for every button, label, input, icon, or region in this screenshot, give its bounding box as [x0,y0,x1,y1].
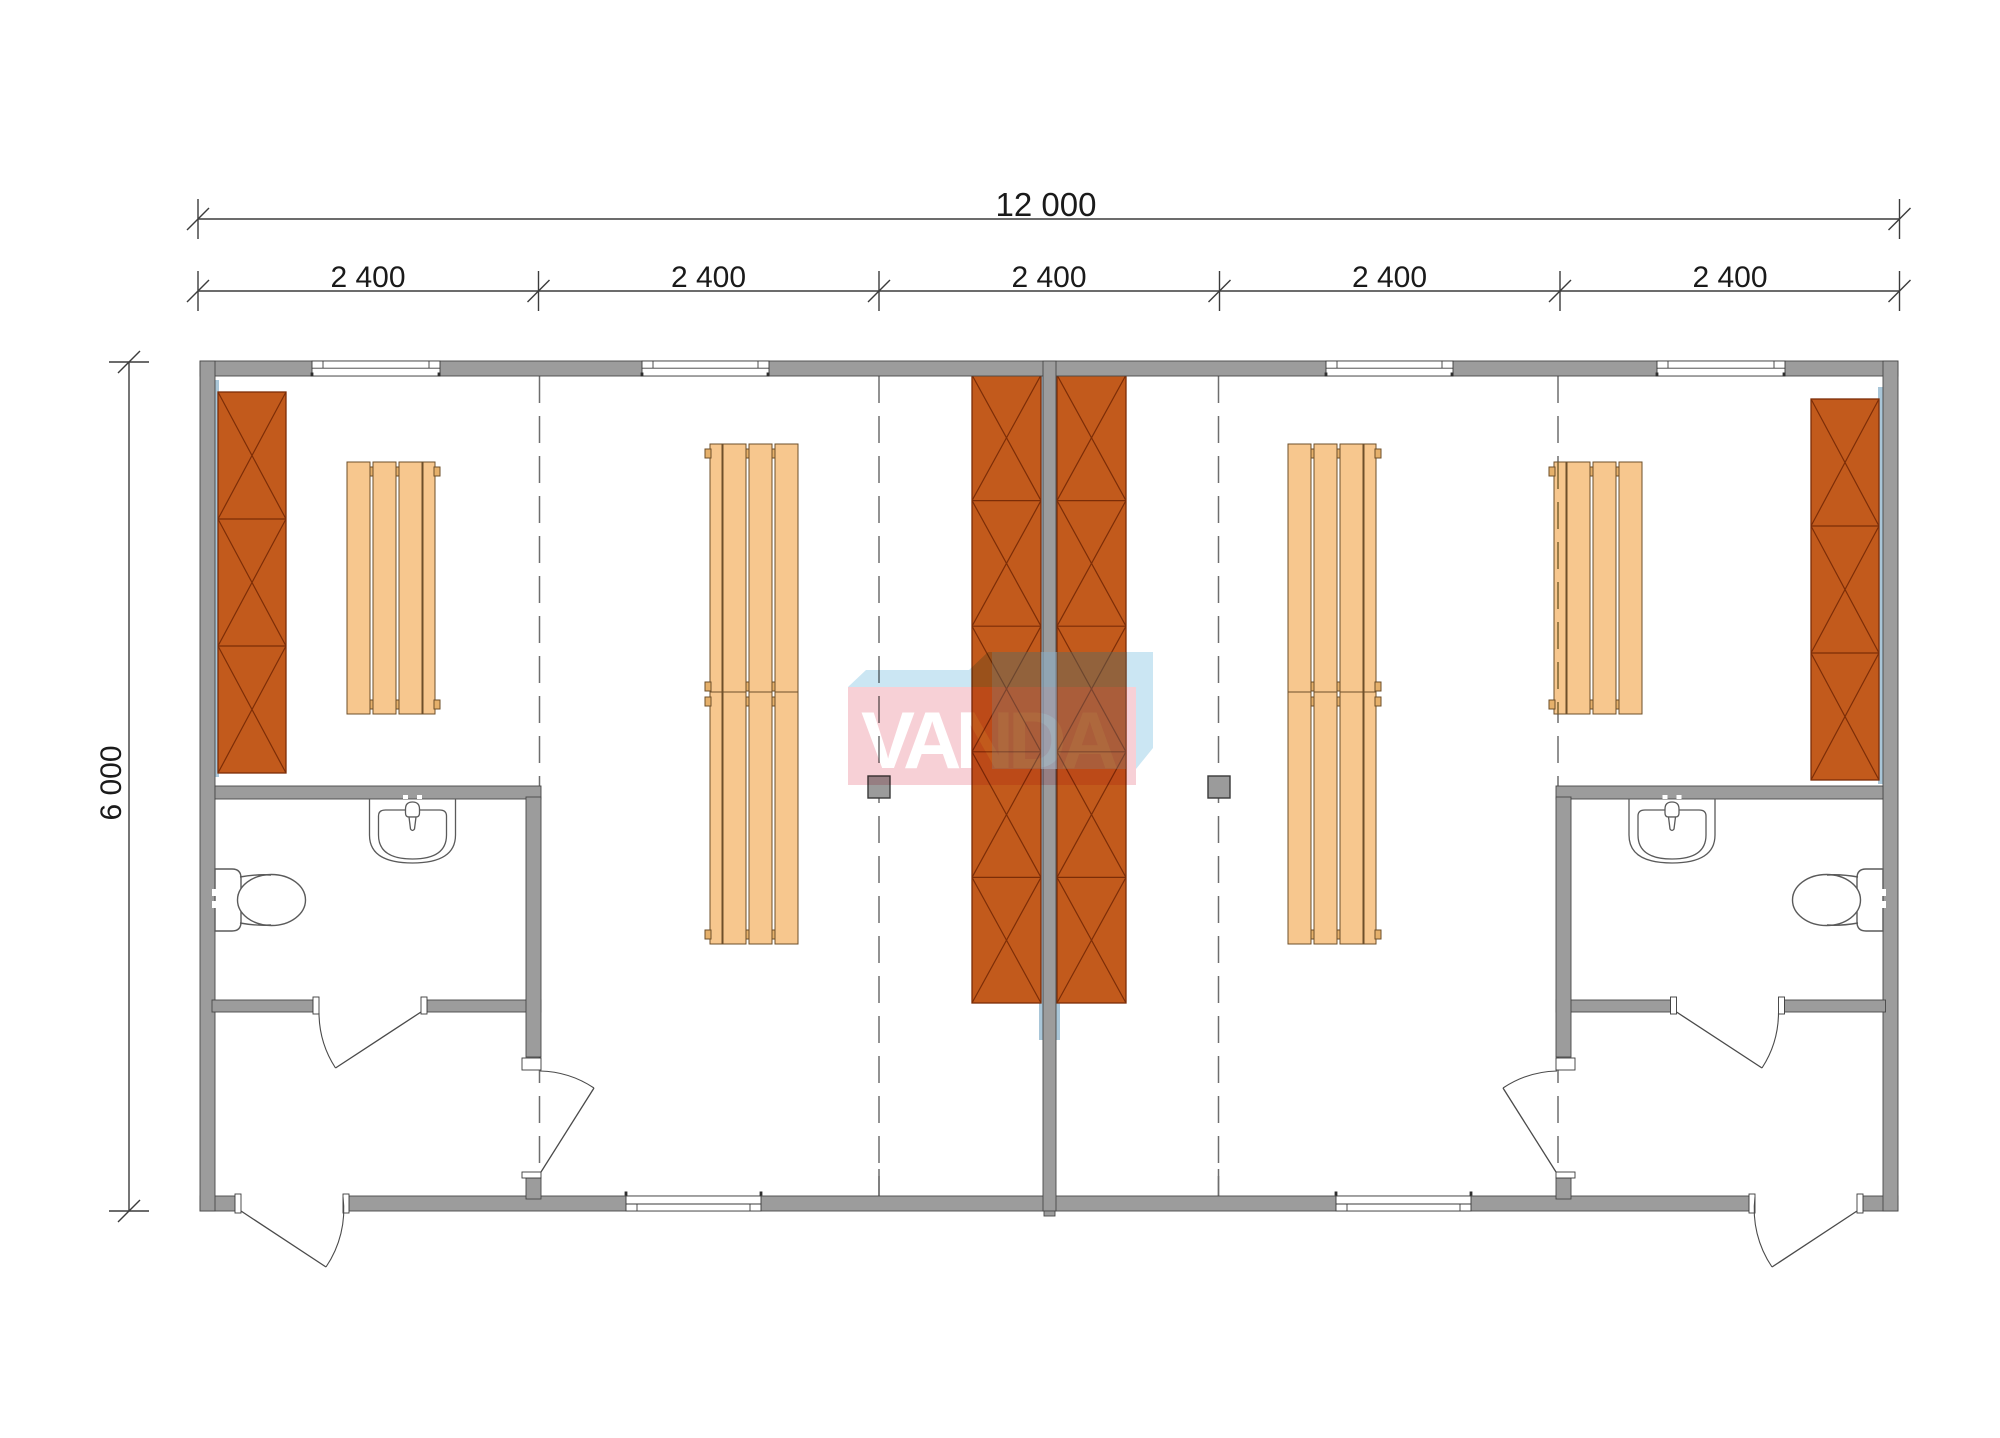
svg-text:2 400: 2 400 [1011,261,1086,294]
svg-text:2 400: 2 400 [330,261,405,294]
svg-text:2 400: 2 400 [1352,261,1427,294]
svg-text:12 000: 12 000 [996,186,1097,223]
svg-text:2 400: 2 400 [671,261,746,294]
svg-text:2 400: 2 400 [1692,261,1767,294]
svg-text:6 000: 6 000 [95,745,128,820]
